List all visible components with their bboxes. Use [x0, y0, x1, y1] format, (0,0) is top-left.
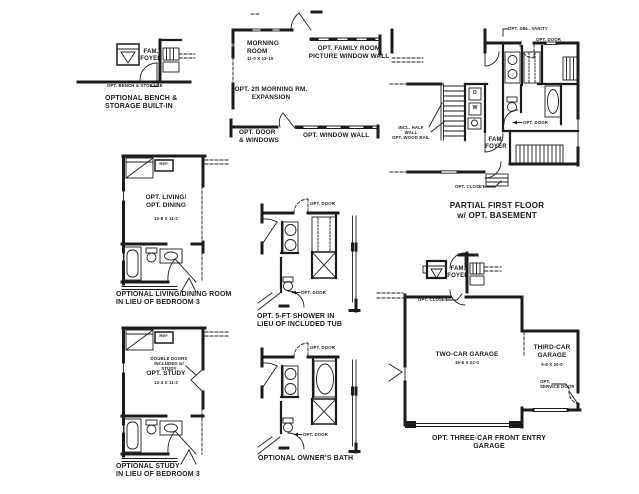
service-door-label: OPT. SERVICE DOOR [540, 379, 575, 389]
floor-plan-sheet: FAM. FOYER OPT. BENCH & STORAGE OPTIONAL… [0, 0, 639, 494]
living-dining-dim: 12-8 X 11-2 [135, 216, 197, 221]
sink-icon [508, 56, 517, 65]
door-swing-icon [263, 219, 277, 222]
ld-ref-label: REF. [155, 162, 173, 167]
owners-bath-opt-door-bottom: OPT. DOOR [303, 432, 328, 437]
owners-bath-plan-drawing [258, 343, 359, 454]
closet-fixture [312, 217, 336, 252]
ff-opt-door-mid-label: OPT. DOOR [523, 120, 548, 125]
two-car-garage-dim: 19-6 X 22-0 [425, 360, 509, 365]
study-plan-drawing [122, 328, 228, 464]
door-swing-icon [485, 52, 499, 66]
living-dining-plan-drawing [122, 156, 228, 292]
garage-plan-drawing [377, 253, 580, 428]
ff-opt-door-top-label: OPT. DOOR [536, 37, 561, 42]
arrow-icon [294, 433, 298, 437]
tub-fixture [314, 361, 336, 397]
storage-shelf [470, 263, 484, 274]
bench-callout-label: OPT. BENCH & STORAGE [107, 83, 163, 88]
living-dining-room-label: OPT. LIVING/ OPT. DINING [135, 194, 197, 209]
arrow-icon [292, 291, 296, 295]
door-swing-icon [291, 13, 299, 30]
toilet-icon [283, 418, 293, 423]
half-wall-label: INCL. HALF WALL OPT. WOOD RAIL [392, 125, 430, 140]
study-dim: 12-4 X 11-2 [135, 380, 197, 385]
arrow-icon [513, 121, 517, 125]
study-room-label: OPT. STUDY [135, 370, 197, 378]
expansion-label: OPT. 2ft MORNING RM. EXPANSION [232, 86, 310, 101]
closet-rod-icon [121, 52, 135, 63]
closet-fixture [524, 52, 540, 83]
first-floor-plan-drawing [390, 29, 578, 187]
two-car-garage-label: TWO-CAR GARAGE [425, 351, 509, 359]
storage-shelf [163, 48, 179, 60]
window-wall-label: OPT. WINDOW WALL [303, 132, 369, 140]
bench-room-label: FAM. FOYER [137, 49, 165, 63]
third-car-garage-dim: 9-8 X 20-0 [526, 362, 578, 367]
door-swing-icon [450, 290, 465, 305]
morning-room-label: MORNING ROOM [247, 40, 279, 55]
garage-caption: OPT. THREE-CAR FRONT ENTRY GARAGE [429, 435, 549, 452]
study-caption: OPTIONAL STUDY IN LIEU OF BEDROOM 3 [116, 463, 200, 480]
morning-room-dim: 11-0 X 12-10 [247, 56, 273, 61]
owners-bath-opt-door-top: OPT. DOOR [310, 345, 335, 350]
garage-foyer-label: FAM. FOYER [444, 266, 472, 280]
double-vanity-fixture [283, 366, 298, 397]
sink-icon [285, 384, 296, 395]
opt-door-swing-icon [294, 343, 308, 357]
door-leaf-icon [299, 13, 311, 30]
ff-foyer-label: FAM. FOYER [484, 137, 508, 151]
door-leaf-icon [263, 366, 277, 387]
stairs-fixture [441, 84, 465, 140]
sink-icon [285, 369, 296, 380]
door-jamb [509, 421, 522, 428]
closet-rod-icon [431, 269, 442, 278]
plan-linework [0, 0, 639, 494]
door-swing-icon [263, 363, 277, 366]
door-leaf-icon [263, 222, 277, 243]
front-stoop [486, 174, 508, 186]
entry-door-swing-icon [485, 162, 501, 178]
bench-caption: OPTIONAL BENCH & STORAGE BUILT-IN [105, 95, 177, 112]
door-leaf-icon [283, 113, 294, 127]
picture-window-label: OPT. FAMILY ROOM PICTURE WINDOW WALL [302, 45, 396, 60]
third-car-garage-label: THIRD-CAR GARAGE [526, 344, 578, 359]
garage-opt-closet-label: OPT. CLOSET [418, 297, 448, 302]
sink-icon [508, 70, 517, 79]
owners-bath-caption: OPTIONAL OWNER'S BATH [258, 455, 353, 463]
opt-door-swing-icon [294, 199, 308, 213]
study-ref-label: REF. [155, 334, 173, 339]
shower-opt-door-top: OPT. DOOR [310, 201, 335, 206]
morning-room-plan-drawing [231, 12, 381, 137]
ff-opt-closet-label: OPT. CLOSET [455, 184, 485, 189]
shower-caption: OPT. 5-FT SHOWER IN LIEU OF INCLUDED TUB [257, 313, 342, 330]
double-vanity-fixture [283, 222, 298, 253]
first-floor-caption: PARTIAL FIRST FLOOR w/ OPT. BASEMENT [444, 201, 550, 220]
sink-icon [285, 240, 296, 251]
closet-fixture [117, 44, 139, 65]
door-swing-icon [140, 63, 157, 80]
toilet-icon [507, 97, 517, 102]
door-windows-label: OPT. DOOR & WINDOWS [239, 129, 279, 144]
sink-icon [285, 225, 296, 236]
dryer-label: D [469, 90, 481, 96]
shower-opt-door-bottom: OPT. DOOR [301, 290, 326, 295]
living-dining-caption: OPTIONAL LIVING/DINING ROOM IN LIEU OF B… [116, 291, 232, 308]
door-jamb [405, 421, 416, 428]
bench-plan-drawing [78, 40, 195, 87]
door-swing-icon [279, 113, 283, 127]
dbl-vanity-label: OPT. DBL. VANITY [508, 26, 548, 31]
double-doors-label: DOUBLE DOORS INCLUDED w/ STUDY [147, 356, 191, 371]
washer-label: W [469, 105, 481, 111]
